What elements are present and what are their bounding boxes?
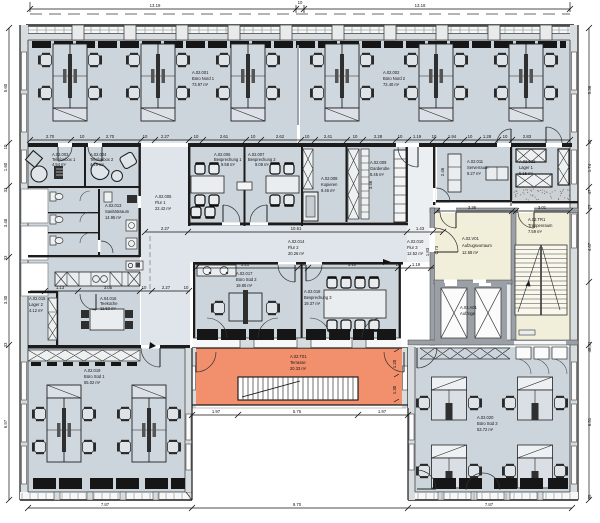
svg-text:10: 10: [301, 262, 306, 267]
svg-text:3.48: 3.48: [3, 218, 8, 227]
svg-text:6.51: 6.51: [587, 417, 592, 426]
svg-text:72.40 m²: 72.40 m²: [383, 82, 400, 87]
svg-text:Kopieren: Kopieren: [321, 182, 338, 187]
svg-text:10: 10: [142, 285, 147, 290]
svg-text:Sanitätsraum: Sanitätsraum: [105, 209, 130, 214]
svg-text:10: 10: [251, 134, 256, 139]
svg-text:Büro Nord 1: Büro Nord 1: [192, 76, 215, 81]
svg-text:5.21: 5.21: [241, 262, 250, 267]
svg-text:10.61: 10.61: [291, 226, 302, 231]
svg-text:A.02.017: A.02.017: [236, 271, 253, 276]
svg-text:2.46: 2.46: [440, 167, 445, 176]
svg-text:1.97: 1.97: [378, 409, 387, 414]
svg-text:6.97: 6.97: [3, 419, 8, 428]
svg-text:10: 10: [143, 134, 148, 139]
svg-text:5.15 m²: 5.15 m²: [519, 171, 534, 176]
svg-text:A.02.018: A.02.018: [304, 289, 321, 294]
svg-text:A.02.010: A.02.010: [407, 239, 424, 244]
svg-text:Treppenraum: Treppenraum: [528, 223, 553, 228]
svg-text:2.27: 2.27: [161, 226, 170, 231]
svg-text:1.28: 1.28: [483, 134, 492, 139]
svg-text:53.72 m²: 53.72 m²: [477, 427, 494, 432]
svg-text:Lager 2: Lager 2: [29, 302, 44, 307]
svg-text:20.33 m²: 20.33 m²: [290, 366, 307, 371]
svg-text:10: 10: [184, 285, 189, 290]
svg-text:11.53 m²: 11.53 m²: [100, 306, 116, 311]
svg-text:10: 10: [3, 144, 8, 149]
svg-text:10: 10: [503, 134, 508, 139]
svg-text:4.67: 4.67: [587, 242, 592, 251]
svg-text:Aufzüge: Aufzüge: [460, 311, 476, 316]
svg-text:4.54 m²: 4.54 m²: [52, 162, 67, 167]
svg-text:1.74: 1.74: [587, 163, 592, 172]
svg-text:10: 10: [468, 134, 473, 139]
svg-text:Serverraum: Serverraum: [467, 165, 489, 170]
svg-text:13.18: 13.18: [415, 3, 426, 8]
svg-text:10: 10: [298, 0, 303, 5]
svg-text:8.45 m²: 8.45 m²: [370, 172, 385, 177]
svg-text:A.02.012: A.02.012: [519, 159, 536, 164]
svg-text:12.52 m²: 12.52 m²: [407, 251, 424, 256]
svg-text:Flur 1: Flur 1: [155, 200, 166, 205]
svg-text:9.08 m²: 9.08 m²: [255, 162, 270, 167]
svg-text:Aufzugsvorraum: Aufzugsvorraum: [462, 243, 492, 248]
svg-text:2.27: 2.27: [161, 134, 170, 139]
svg-text:A.02.T01: A.02.T01: [290, 354, 307, 359]
svg-text:Büro Süd 1: Büro Süd 1: [84, 374, 105, 379]
svg-text:Garderobe: Garderobe: [370, 166, 390, 171]
svg-text:4.46 m²: 4.46 m²: [90, 162, 105, 167]
svg-text:Terrasse: Terrasse: [290, 360, 306, 365]
svg-text:3.46: 3.46: [368, 180, 373, 189]
svg-text:22.42 m²: 22.42 m²: [155, 206, 172, 211]
svg-text:A.02.009: A.02.009: [370, 160, 387, 165]
svg-text:3.36: 3.36: [468, 205, 477, 210]
svg-text:A.02.TR1: A.02.TR1: [528, 217, 546, 222]
svg-text:A.02.014: A.02.014: [288, 239, 305, 244]
svg-text:A.02.002: A.02.002: [383, 70, 400, 75]
svg-text:73.97 m²: 73.97 m²: [192, 82, 209, 87]
svg-text:10: 10: [80, 134, 85, 139]
svg-text:A.02.V01: A.02.V01: [462, 236, 480, 241]
svg-text:14.95 m²: 14.95 m²: [105, 215, 122, 220]
svg-text:A.02.008: A.02.008: [321, 176, 338, 181]
svg-text:1.13: 1.13: [56, 285, 65, 290]
svg-text:Flur 3: Flur 3: [407, 245, 418, 250]
svg-text:1.20: 1.20: [392, 359, 397, 368]
svg-text:55.02 m²: 55.02 m²: [84, 380, 101, 385]
svg-text:10: 10: [194, 134, 199, 139]
svg-text:1.43: 1.43: [416, 226, 425, 231]
svg-text:Büro Nord 2: Büro Nord 2: [383, 76, 406, 81]
svg-text:13.19: 13.19: [150, 3, 161, 8]
svg-text:2.70: 2.70: [106, 134, 115, 139]
svg-text:A.02.A01: A.02.A01: [460, 305, 478, 310]
svg-text:27: 27: [587, 204, 592, 209]
svg-text:2.70: 2.70: [46, 134, 55, 139]
svg-text:5.60: 5.60: [3, 83, 8, 92]
svg-text:33: 33: [3, 342, 8, 347]
svg-text:0.73: 0.73: [434, 245, 439, 254]
svg-text:12.58 m²: 12.58 m²: [462, 250, 479, 255]
svg-text:1.30: 1.30: [392, 385, 397, 394]
svg-text:5.10: 5.10: [348, 262, 357, 267]
svg-text:19.80 m²: 19.80 m²: [236, 283, 253, 288]
svg-text:Flur 2: Flur 2: [288, 245, 299, 250]
svg-text:1.19: 1.19: [412, 262, 421, 267]
svg-text:10: 10: [305, 134, 310, 139]
svg-text:9.46 m²: 9.46 m²: [321, 188, 336, 193]
svg-text:10: 10: [353, 134, 358, 139]
svg-text:3.30: 3.30: [3, 295, 8, 304]
svg-text:20.26 m²: 20.26 m²: [288, 251, 305, 256]
svg-text:2.28: 2.28: [374, 134, 383, 139]
svg-text:1.97: 1.97: [212, 409, 221, 414]
svg-text:10: 10: [396, 262, 401, 267]
svg-text:A.02.001: A.02.001: [192, 70, 209, 75]
svg-text:9.70: 9.70: [293, 502, 302, 507]
svg-text:19.37 m²: 19.37 m²: [304, 301, 321, 306]
svg-text:1.19: 1.19: [413, 134, 422, 139]
svg-text:33: 33: [3, 255, 8, 260]
svg-text:33: 33: [3, 187, 8, 192]
svg-text:1.94: 1.94: [448, 134, 457, 139]
svg-text:A.02.015: A.02.015: [29, 296, 46, 301]
svg-text:7.87: 7.87: [485, 502, 494, 507]
svg-text:2.41: 2.41: [324, 134, 333, 139]
svg-text:48,31: 48,31: [587, 341, 592, 352]
svg-text:A.02.019: A.02.019: [84, 368, 101, 373]
svg-text:A.02.020: A.02.020: [477, 415, 494, 420]
svg-text:9.27 m²: 9.27 m²: [467, 171, 482, 176]
svg-text:47: 47: [587, 189, 592, 194]
svg-text:2.27: 2.27: [162, 285, 171, 290]
svg-text:10: 10: [587, 139, 592, 144]
svg-text:10: 10: [398, 134, 403, 139]
svg-text:Besprechung 3: Besprechung 3: [304, 295, 332, 300]
svg-text:1.83: 1.83: [425, 247, 430, 256]
svg-text:2.83: 2.83: [523, 134, 532, 139]
svg-text:4.12 m²: 4.12 m²: [29, 308, 44, 313]
svg-text:1.60: 1.60: [3, 162, 8, 171]
svg-text:2.61: 2.61: [220, 134, 229, 139]
svg-text:7.87: 7.87: [101, 502, 110, 507]
svg-text:Büro Süd 2: Büro Süd 2: [236, 277, 257, 282]
svg-text:A.02.013: A.02.013: [105, 203, 122, 208]
svg-text:5.76: 5.76: [293, 409, 302, 414]
svg-text:3.05: 3.05: [104, 285, 113, 290]
svg-text:9.58 m²: 9.58 m²: [221, 162, 236, 167]
svg-text:2.62: 2.62: [276, 134, 285, 139]
svg-text:A.02.005: A.02.005: [155, 194, 172, 199]
svg-text:Büro Süd 3: Büro Süd 3: [477, 421, 498, 426]
svg-text:35: 35: [587, 494, 592, 499]
svg-text:A.02.011: A.02.011: [467, 159, 484, 164]
svg-text:7.59 m²: 7.59 m²: [528, 229, 543, 234]
svg-text:10: 10: [432, 134, 437, 139]
svg-text:3.01: 3.01: [538, 205, 547, 210]
svg-text:5.36: 5.36: [587, 85, 592, 94]
svg-text:Lager 1: Lager 1: [519, 165, 534, 170]
